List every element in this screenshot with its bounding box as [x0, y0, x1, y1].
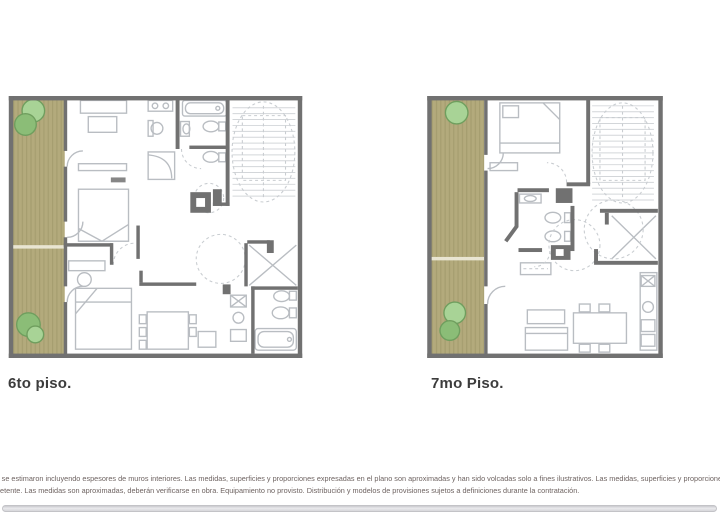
- floorplan-caption-6: 6to piso.: [8, 375, 71, 392]
- tree-icon: [445, 101, 468, 124]
- floorplan-sheet: 6to piso. 7mo Piso. s se estimaron inclu…: [0, 0, 720, 532]
- legal-disclaimer: s se estimaron incluyendo espesores de m…: [0, 473, 720, 497]
- sofa: [527, 310, 564, 324]
- door-swings: [67, 151, 245, 302]
- bidet-icon: [274, 291, 290, 302]
- kitchen-fixtures: [640, 273, 657, 351]
- staircase: [232, 102, 295, 202]
- kitchen-fixtures: [148, 100, 174, 179]
- bedroom-furniture: [69, 261, 132, 349]
- dining-table: [573, 313, 626, 343]
- horizontal-scrollbar[interactable]: [2, 505, 717, 512]
- living-furniture: [525, 304, 626, 352]
- disclaimer-line-1: s se estimaron incluyendo espesores de m…: [0, 473, 720, 485]
- closet: [612, 216, 656, 259]
- bedroom-furniture: [78, 100, 128, 241]
- toilet-icon: [203, 121, 219, 132]
- bedroom-furniture: [490, 103, 560, 171]
- floorplan-6th-floor: [6, 96, 305, 358]
- bidet-icon: [203, 151, 219, 162]
- bidet-icon: [545, 231, 561, 242]
- toilet-icon: [545, 212, 561, 223]
- dining-furniture: [139, 312, 216, 349]
- kitchen-fixtures: [231, 295, 247, 341]
- bed: [78, 189, 128, 241]
- floorplan-caption-7: 7mo Piso.: [431, 375, 504, 392]
- disclaimer-line-2: petente. Las medidas son aproximadas, de…: [0, 485, 720, 497]
- bathroom-fixtures: [255, 291, 296, 350]
- staircase: [592, 103, 654, 203]
- bed: [76, 288, 132, 349]
- floorplan-7th-floor: [425, 96, 665, 358]
- tv-icon: [111, 177, 126, 182]
- toilet-icon: [272, 307, 289, 319]
- dining-table: [147, 312, 188, 349]
- bathroom-fixtures: [181, 100, 227, 168]
- door-swings: [488, 153, 644, 304]
